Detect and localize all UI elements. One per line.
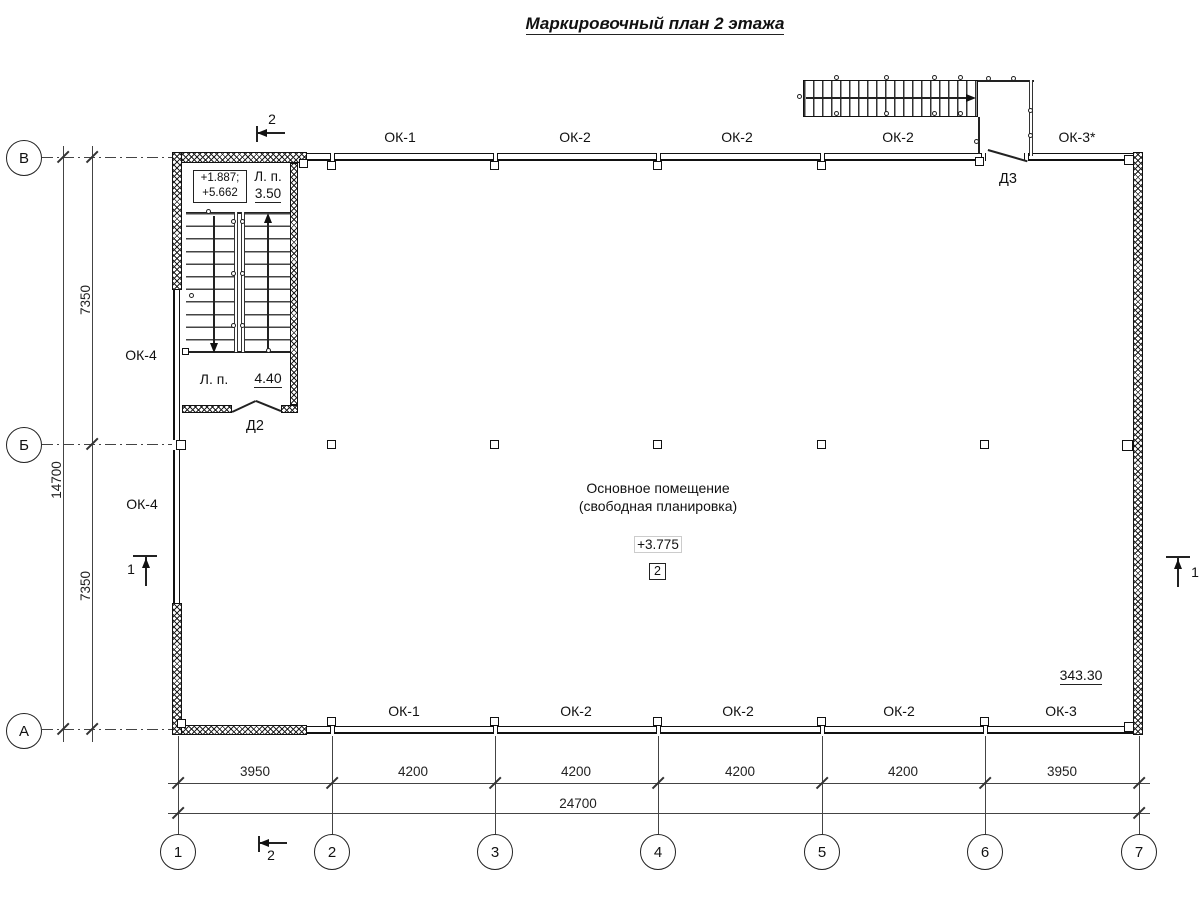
room-area-wrap: 343.30: [1051, 667, 1111, 683]
stairwell-partition-wall: [290, 163, 298, 405]
window-label-top-5: ОК-3*: [1045, 129, 1109, 145]
door-d2-leaf-left: [232, 400, 256, 412]
dim-label-14700: 14700: [49, 450, 63, 510]
rail-post-icon: [231, 271, 236, 276]
column: [653, 717, 662, 726]
rail-post-icon: [932, 111, 937, 116]
window-label-bottom-1: ОК-1: [372, 703, 436, 719]
floor-plan-drawing: Маркировочный план 2 этажа 7350 7350 147…: [0, 0, 1200, 900]
window-mullion: [656, 726, 661, 734]
window-strip-top-left: [307, 153, 985, 161]
dim-label-4200-2: 4200: [544, 764, 608, 779]
stairwell-wall-right-of-door: [281, 405, 298, 413]
corner-column-top-right: [1124, 155, 1134, 165]
stair-direction-line-up: [267, 222, 269, 350]
rail-post-icon: [1028, 133, 1033, 138]
section-1-left-label: 1: [124, 561, 138, 577]
lower-landing-value: 4.40: [254, 370, 281, 388]
axis-circle-a: А: [6, 713, 42, 749]
stair-arrow-up-icon: [264, 213, 272, 223]
window-label-top-4: ОК-2: [866, 129, 930, 145]
axis-line-row-b: [42, 444, 172, 445]
lower-landing-value-wrap: 4.40: [247, 370, 289, 386]
section-2-bottom-label: 2: [262, 847, 280, 863]
dim-label-4200-4: 4200: [871, 764, 935, 779]
stair-elevation-box: +1.887; +5.662: [193, 170, 247, 203]
column: [980, 440, 989, 449]
rail-post-icon: [206, 209, 211, 214]
column: [490, 440, 499, 449]
rail-post-icon: [884, 75, 889, 80]
axis-label-4: 4: [654, 844, 662, 861]
axis-label-a: А: [19, 723, 29, 740]
door-d2-label: Д2: [238, 418, 272, 434]
axis-label-v: В: [19, 150, 29, 167]
window-strip-bottom: [307, 726, 1133, 734]
dim-line-bottom-total: [168, 813, 1150, 814]
window-label-top-2: ОК-2: [543, 129, 607, 145]
dim-label-3950-1: 3950: [223, 764, 287, 779]
stair-landing-edge-bottom: [186, 351, 290, 353]
rail-post-icon: [884, 111, 889, 116]
rail-post-icon: [1011, 76, 1016, 81]
window-mullion: [493, 726, 498, 734]
window-mullion: [983, 726, 988, 734]
column: [817, 161, 826, 170]
stair-elevation-line1: +1.887;: [194, 171, 246, 186]
axis-extension-6: [985, 736, 986, 834]
rail-post-icon: [231, 219, 236, 224]
axis-label-b: Б: [19, 437, 29, 454]
window-label-left-lower: ОК-4: [118, 496, 166, 512]
axis-circle-b: Б: [6, 427, 42, 463]
corner-column-bottom-left: [177, 719, 186, 728]
window-mullion: [656, 153, 661, 161]
column: [653, 440, 662, 449]
rail-post-icon: [266, 348, 271, 353]
drawing-title-wrap: Маркировочный план 2 этажа: [400, 14, 910, 34]
upper-landing-value: 3.50: [255, 186, 281, 203]
column: [653, 161, 662, 170]
corner-column-bottom-right: [1124, 722, 1134, 732]
window-mullion: [820, 726, 825, 734]
stair-elevation-line2: +5.662: [194, 186, 246, 201]
axis-circle-2: 2: [314, 834, 350, 870]
dim-line-bottom-segments: [168, 783, 1150, 784]
rail-post-icon: [240, 271, 245, 276]
room-name: Основное помещение: [498, 480, 818, 496]
window-mullion: [330, 726, 335, 734]
axis-extension-1: [178, 736, 179, 834]
stair-arrow-down-icon: [210, 343, 218, 353]
axis-label-6: 6: [981, 844, 989, 861]
section-2-top-label: 2: [264, 111, 280, 127]
dim-label-7350-lower: 7350: [78, 556, 92, 616]
axis-label-2: 2: [328, 844, 336, 861]
stair-stringer-left: [234, 212, 238, 352]
wall-right: [1133, 152, 1143, 735]
window-label-bottom-4: ОК-2: [867, 703, 931, 719]
stair-flight-left: [186, 213, 236, 351]
axis-circle-5: 5: [804, 834, 840, 870]
column: [817, 440, 826, 449]
dim-label-4200-3: 4200: [708, 764, 772, 779]
door-d3-label: Д3: [990, 171, 1026, 187]
rail-post-icon: [958, 111, 963, 116]
door-d3-leaf: [988, 149, 1028, 162]
room-area: 343.30: [1060, 667, 1103, 685]
rail-post-icon: [974, 139, 979, 144]
axis-label-5: 5: [818, 844, 826, 861]
axis-label-1: 1: [174, 844, 182, 861]
window-label-top-3: ОК-2: [705, 129, 769, 145]
axis-extension-7: [1139, 736, 1140, 834]
section-1-right-label: 1: [1188, 564, 1200, 580]
column: [817, 717, 826, 726]
window-label-left-upper: ОК-4: [117, 347, 165, 363]
wall-bottom-left: [172, 725, 307, 735]
rail-post-icon: [834, 111, 839, 116]
column-wall-right: [1122, 440, 1133, 451]
rail-post-icon: [240, 323, 245, 328]
lower-landing-label: Л. п.: [194, 371, 234, 387]
rail-post-icon: [932, 75, 937, 80]
column: [490, 717, 499, 726]
column: [327, 440, 336, 449]
dim-label-7350-upper: 7350: [78, 270, 92, 330]
fire-escape-direction-line: [806, 97, 969, 99]
window-strip-top-right: [1027, 153, 1133, 161]
column: [975, 157, 984, 166]
platform-rail-left: [978, 117, 980, 154]
rail-post-icon: [958, 75, 963, 80]
window-mullion: [820, 153, 825, 161]
rail-post-icon: [231, 323, 236, 328]
axis-circle-3: 3: [477, 834, 513, 870]
upper-landing-label: Л. п.: [249, 169, 287, 184]
window-mullion: [493, 153, 498, 161]
rail-post-icon: [189, 293, 194, 298]
window-label-bottom-3: ОК-2: [706, 703, 770, 719]
corner-column-stairwell: [299, 159, 308, 168]
page-title: Маркировочный план 2 этажа: [526, 14, 785, 35]
axis-circle-4: 4: [640, 834, 676, 870]
window-mullion: [330, 153, 335, 161]
stair-direction-line-down: [213, 216, 215, 344]
upper-landing-value-wrap: 3.50: [249, 186, 287, 201]
dim-label-4200-1: 4200: [381, 764, 445, 779]
dim-label-24700: 24700: [546, 796, 610, 811]
column: [980, 717, 989, 726]
door-d2-leaf-right: [256, 400, 282, 412]
axis-extension-5: [822, 736, 823, 834]
axis-circle-7: 7: [1121, 834, 1157, 870]
rail-post-icon: [240, 219, 245, 224]
fire-escape-ladder: [803, 80, 978, 117]
window-label-bottom-5: ОК-3: [1029, 703, 1093, 719]
column-wall-left: [176, 440, 186, 450]
stair-stringer-right: [241, 212, 245, 352]
axis-extension-4: [658, 736, 659, 834]
rail-post-icon: [1028, 108, 1033, 113]
column: [327, 161, 336, 170]
window-strip-left-lower: [173, 450, 180, 603]
section-1-right-arrow-icon: [1174, 559, 1182, 569]
room-number-badge: 2: [649, 563, 666, 580]
axis-circle-6: 6: [967, 834, 1003, 870]
rail-post-icon: [986, 76, 991, 81]
axis-circle-1: 1: [160, 834, 196, 870]
axis-extension-2: [332, 736, 333, 834]
column: [490, 161, 499, 170]
wall-top-stairwell: [172, 152, 307, 163]
fire-escape-arrow-icon: [966, 94, 976, 102]
platform-rail-right: [1029, 80, 1033, 156]
rail-post-icon: [834, 75, 839, 80]
section-2-top-arrow-icon: [257, 129, 267, 137]
wall-left-upper: [172, 152, 182, 290]
wall-left-lower: [172, 603, 182, 735]
room-name-line2: (свободная планировка): [498, 498, 818, 514]
axis-circle-v: В: [6, 140, 42, 176]
window-strip-left-upper: [173, 290, 180, 440]
axis-extension-3: [495, 736, 496, 834]
axis-label-3: 3: [491, 844, 499, 861]
axis-label-7: 7: [1135, 844, 1143, 861]
section-1-left-arrow-icon: [142, 558, 150, 568]
rail-post-icon: [797, 94, 802, 99]
room-elevation: +3.775: [634, 536, 682, 553]
column: [327, 717, 336, 726]
section-2-bottom-arrow-icon: [259, 839, 269, 847]
dim-label-3950-2: 3950: [1030, 764, 1094, 779]
window-label-top-1: ОК-1: [368, 129, 432, 145]
stairwell-wall-left-of-door: [182, 405, 232, 413]
stair-landing-post: [182, 348, 189, 355]
window-label-bottom-2: ОК-2: [544, 703, 608, 719]
